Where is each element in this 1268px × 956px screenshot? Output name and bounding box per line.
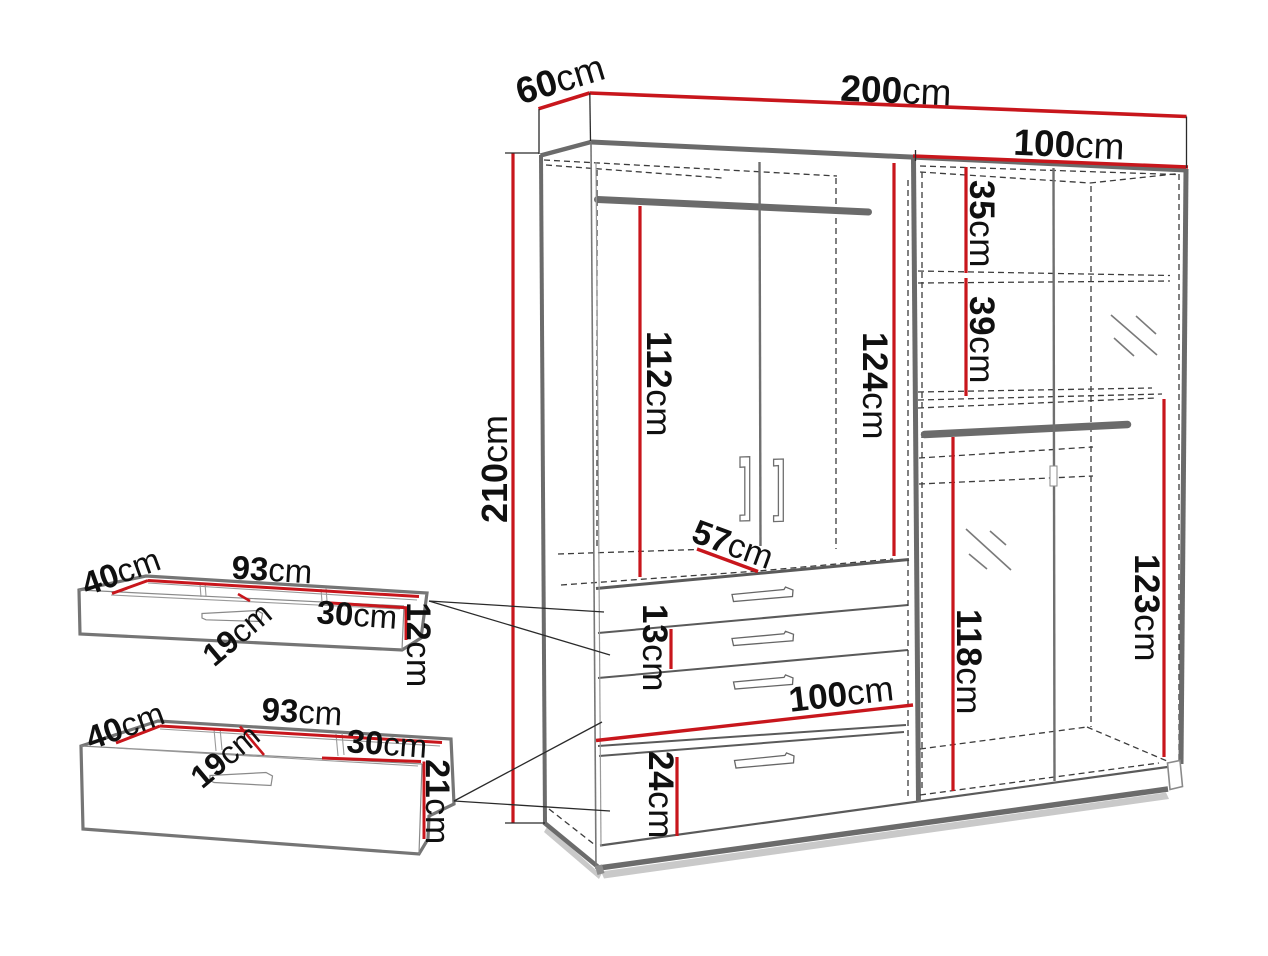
svg-text:21cm: 21cm xyxy=(418,759,456,845)
svg-text:35cm: 35cm xyxy=(962,180,1001,268)
svg-text:210cm: 210cm xyxy=(474,415,515,523)
svg-text:12cm: 12cm xyxy=(399,602,437,688)
svg-text:93cm: 93cm xyxy=(231,549,314,591)
svg-text:24cm: 24cm xyxy=(641,751,680,839)
svg-text:118cm: 118cm xyxy=(949,609,988,715)
svg-text:13cm: 13cm xyxy=(635,604,674,692)
svg-text:100cm: 100cm xyxy=(1013,122,1126,168)
svg-text:93cm: 93cm xyxy=(261,691,344,733)
svg-text:124cm: 124cm xyxy=(855,332,894,440)
svg-text:123cm: 123cm xyxy=(1127,554,1166,662)
svg-text:200cm: 200cm xyxy=(840,68,953,114)
svg-text:30cm: 30cm xyxy=(345,722,428,765)
svg-text:30cm: 30cm xyxy=(315,593,398,636)
svg-text:112cm: 112cm xyxy=(639,331,678,437)
svg-text:39cm: 39cm xyxy=(962,296,1001,384)
